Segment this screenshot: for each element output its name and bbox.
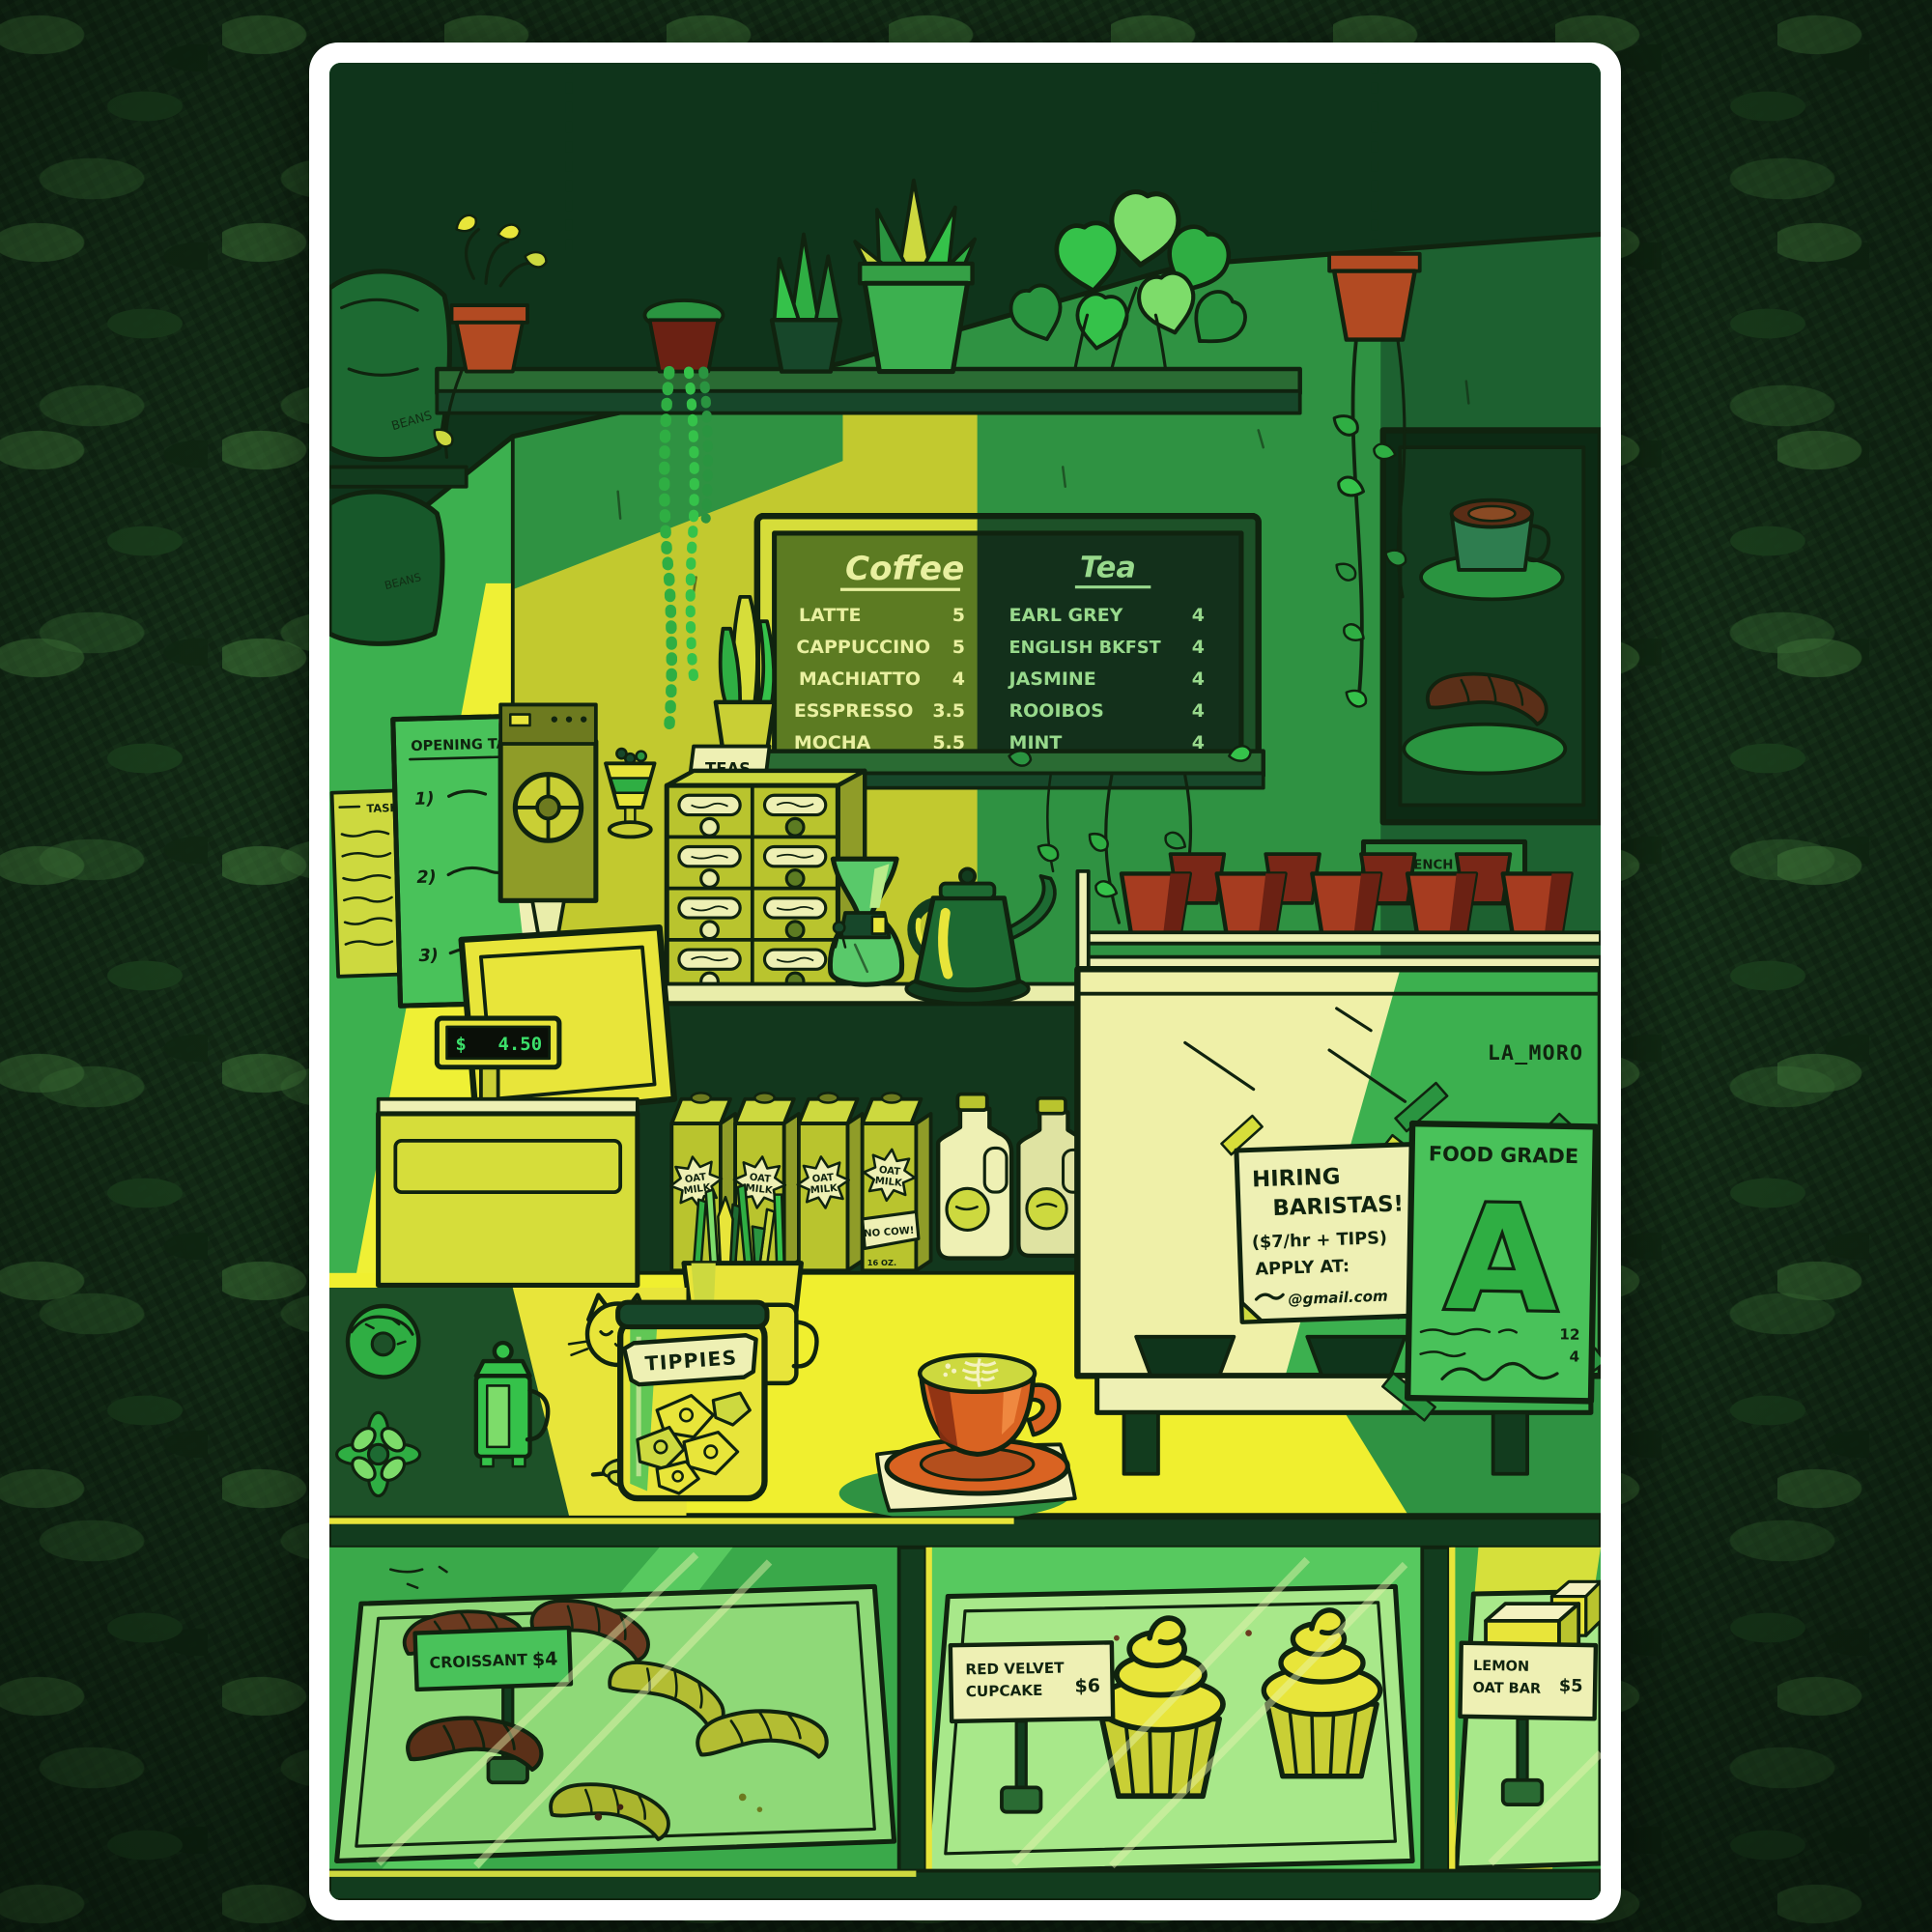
- croissant-price-tag: CROISSANT $4: [415, 1628, 571, 1690]
- hiring-line: APPLY AT:: [1255, 1257, 1350, 1279]
- tippies-banner: TIPPIES: [624, 1335, 758, 1386]
- display-currency: $: [455, 1034, 466, 1055]
- bean-goblet: [606, 749, 655, 837]
- tag-price: $5: [1559, 1677, 1583, 1696]
- donut-sticker: [348, 1306, 418, 1378]
- group-head: [1307, 1337, 1405, 1377]
- oat-milk-cartons: OAT MILK OAT MILK: [668, 1093, 931, 1270]
- list-marker: 2): [416, 867, 437, 888]
- menu-price: 5: [952, 637, 965, 658]
- menu-item: LATTE: [799, 605, 862, 626]
- list-marker: 1): [414, 789, 435, 810]
- case-divider: [1422, 1548, 1449, 1873]
- display-amount: 4.50: [497, 1034, 542, 1055]
- menu-chalkboard: Coffee Tea LATTE 5 CAPPUCCINO 5 MACHIATT…: [757, 516, 1259, 782]
- list-marker: 3): [418, 947, 439, 967]
- menu-price: 3.5: [932, 700, 965, 722]
- art-print-sticker: BEANS BEANS: [309, 43, 1621, 1920]
- food-grade-number: 4: [1569, 1348, 1579, 1365]
- tag-price: $6: [1074, 1675, 1100, 1696]
- menu-price: 4: [1192, 668, 1205, 690]
- cupcake-price-tag: RED VELVET CUPCAKE $6: [951, 1642, 1113, 1721]
- menu-item: ESSPRESSO: [794, 700, 914, 722]
- menu-tea-heading: Tea: [1080, 552, 1136, 585]
- menu-item: MACHIATTO: [799, 668, 921, 690]
- oat-bar-price-tag: LEMON OAT BAR $5: [1460, 1643, 1595, 1719]
- menu-item: EARL GREY: [1009, 605, 1123, 626]
- tag-price: $4: [532, 1648, 558, 1670]
- menu-coffee-heading: Coffee: [845, 550, 964, 588]
- tag-name: CUPCAKE: [966, 1682, 1043, 1700]
- menu-price: 4: [1192, 700, 1205, 722]
- machine-brand: LA_MORO: [1488, 1041, 1583, 1065]
- menu-price: 4: [1192, 637, 1205, 658]
- menu-price: 5: [952, 605, 965, 626]
- case-divider: [899, 1548, 926, 1873]
- framed-art: [1383, 430, 1601, 822]
- tag-name: RED VELVET: [965, 1660, 1065, 1679]
- plant-shelf: [437, 369, 1299, 413]
- food-grade-number: 12: [1559, 1325, 1579, 1343]
- coffee-shop-illustration: BEANS BEANS: [329, 63, 1601, 1900]
- food-grade-title: FOOD GRADE: [1429, 1142, 1579, 1168]
- group-head: [1136, 1337, 1234, 1377]
- scene: BEANS BEANS: [0, 0, 1932, 1932]
- tag-name: OAT BAR: [1472, 1680, 1541, 1697]
- menu-item: CAPPUCCINO: [796, 637, 930, 658]
- bakery-display-case: CROISSANT $4: [329, 1518, 1601, 1900]
- menu-item: ROOIBOS: [1009, 700, 1104, 722]
- food-grade-letter: A: [1444, 1175, 1559, 1345]
- tag-name: LEMON: [1473, 1658, 1529, 1675]
- menu-item: ENGLISH BKFST: [1009, 639, 1161, 658]
- machine-leg: [1124, 1412, 1158, 1473]
- hiring-email: @gmail.com: [1288, 1288, 1388, 1309]
- hiring-line: BARISTAS!: [1272, 1191, 1404, 1221]
- hiring-line: HIRING: [1252, 1164, 1341, 1192]
- carton-size: 16 OZ.: [867, 1258, 896, 1267]
- menu-item: JASMINE: [1008, 668, 1096, 690]
- menu-price: 4: [952, 668, 965, 690]
- customer-display: $ 4.50: [437, 1018, 559, 1067]
- tag-name: CROISSANT: [429, 1650, 527, 1672]
- machine-leg: [1493, 1412, 1527, 1473]
- food-grade-poster: FOOD GRADE A 12 4: [1382, 1082, 1601, 1423]
- menu-price: 4: [1192, 605, 1205, 626]
